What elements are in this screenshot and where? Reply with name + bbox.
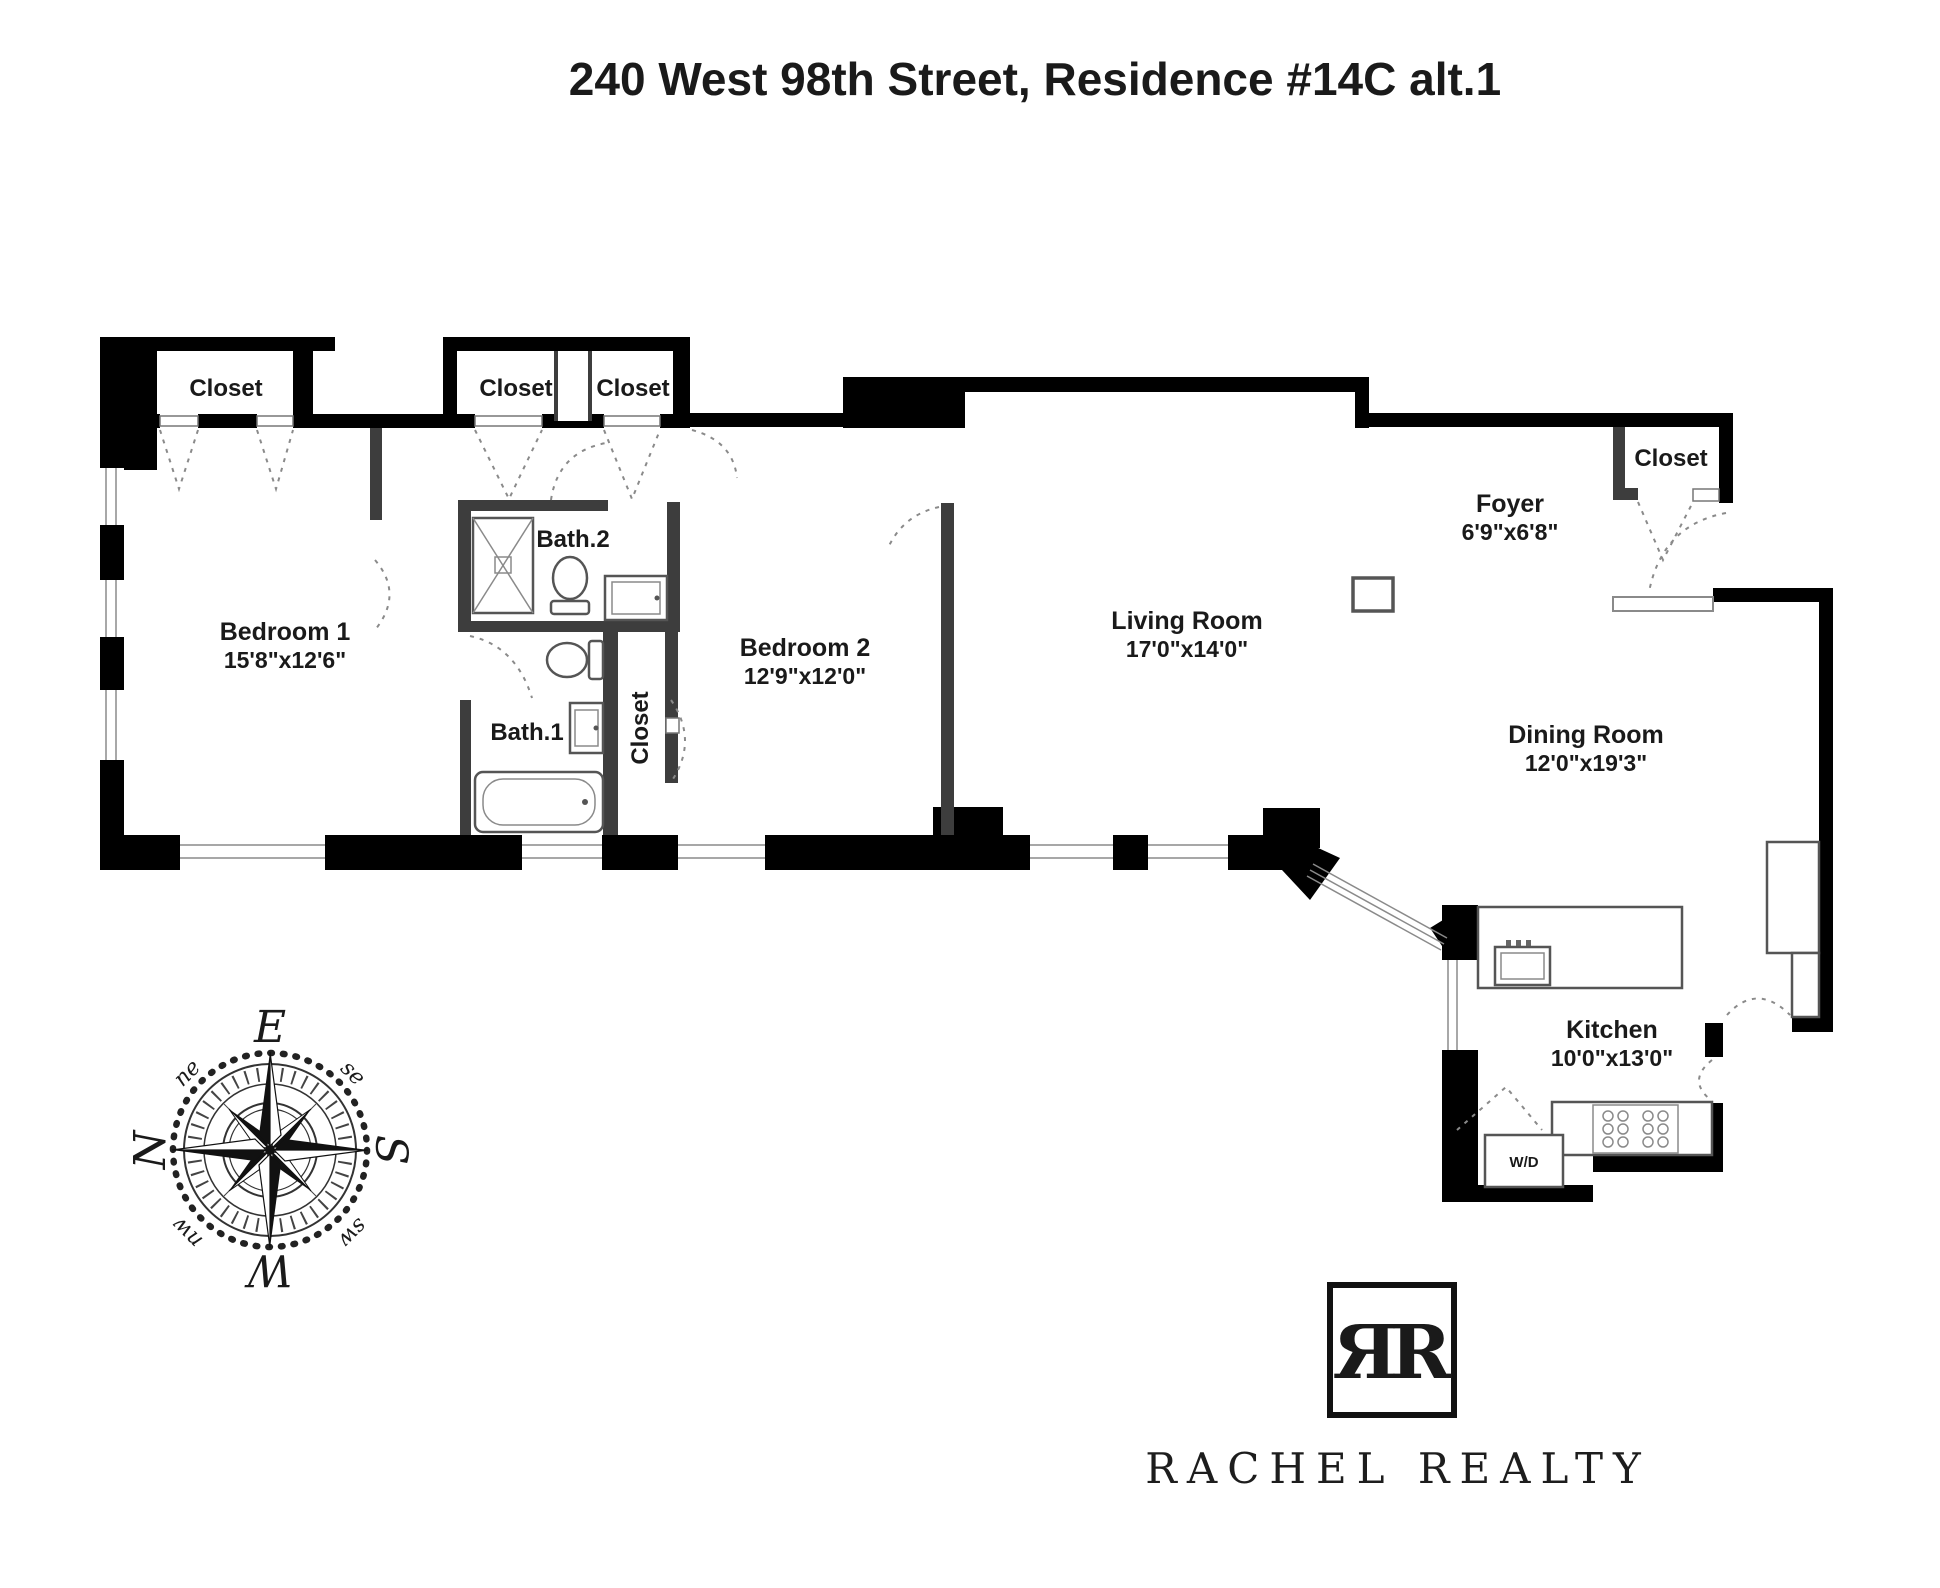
window-diagonal-passage [1307, 864, 1447, 950]
brand-name: RACHEL REALTY [1145, 1444, 1650, 1493]
dims-living-room: 17'0"x14'0" [1126, 636, 1248, 662]
door-swing-bedroom2-living [888, 507, 939, 548]
door-swing-closet2 [475, 430, 542, 499]
label-living-room: Living Room [1111, 607, 1262, 635]
door-swing-bath1 [470, 636, 532, 698]
toilet-bath2 [551, 557, 589, 614]
dims-bedroom2: 12'9"x12'0" [744, 663, 866, 689]
label-closet-hall-right: Closet [596, 375, 669, 402]
compass-east-label: E [253, 1002, 286, 1053]
label-foyer: Foyer [1476, 490, 1544, 518]
compass-south-label: S [365, 1135, 416, 1165]
door-swing-kitchen-side [1699, 1060, 1712, 1101]
label-closet-foyer: Closet [1634, 445, 1707, 472]
door-sills [160, 416, 1719, 733]
label-dining-room: Dining Room [1508, 721, 1664, 749]
compass-rose: E S W N ne se sw nw [125, 1002, 416, 1295]
door-swing-closet1-right [257, 430, 293, 489]
dims-bedroom1: 15'8"x12'6" [224, 647, 346, 673]
window-bottom-5 [1148, 835, 1228, 870]
compass-west-label: W [244, 1244, 293, 1295]
bathtub [475, 772, 603, 832]
dims-foyer: 6'9"x6'8" [1462, 519, 1559, 545]
window-bottom-2 [522, 835, 602, 870]
floor-plan-drawing: 240 West 98th Street, Residence #14C alt… [0, 0, 1940, 1588]
window-bottom-3 [678, 835, 765, 870]
window-bottom-1 [180, 835, 325, 870]
door-swing-kitchen-east [1727, 999, 1790, 1016]
door-swing-entry [1649, 513, 1726, 592]
label-bath1: Bath.1 [490, 719, 563, 746]
brand-block: ЯR RACHEL REALTY [1145, 1285, 1650, 1493]
dims-dining-room: 12'0"x19'3" [1525, 750, 1647, 776]
door-swing-bath2 [551, 443, 606, 500]
page-title: 240 West 98th Street, Residence #14C alt… [569, 53, 1501, 105]
label-closet-hall-left: Closet [479, 375, 552, 402]
dims-kitchen: 10'0"x13'0" [1551, 1045, 1673, 1071]
label-closet-hallway-vertical: Closet [627, 691, 654, 764]
label-bedroom1: Bedroom 1 [220, 618, 351, 646]
door-swing-closet1-left [160, 430, 198, 489]
windows [100, 468, 1464, 1050]
window-kitchen [1442, 960, 1464, 1050]
kitchen-island [1478, 907, 1682, 988]
kitchen-counter-right [1767, 842, 1819, 1017]
compass-north-label: N [125, 1129, 176, 1170]
window-left-2 [100, 580, 124, 637]
window-bottom-4 [1030, 835, 1113, 870]
label-bath2: Bath.2 [536, 526, 609, 553]
toilet-bath1 [547, 641, 603, 679]
shower [473, 518, 533, 613]
label-kitchen: Kitchen [1566, 1016, 1658, 1044]
column [1353, 578, 1393, 611]
window-left-3 [100, 690, 124, 760]
window-left-1 [100, 468, 124, 525]
stove [1552, 1102, 1712, 1155]
foyer-console [1613, 597, 1713, 611]
door-swing-closet3 [604, 430, 660, 499]
washer-dryer: W/D [1485, 1135, 1563, 1187]
label-bedroom2: Bedroom 2 [740, 634, 871, 662]
sink-bath1 [570, 703, 603, 753]
door-swing-bedroom1 [375, 560, 390, 630]
door-swing-bedroom2-hall [692, 430, 737, 478]
compass-northeast-label: ne [169, 1055, 206, 1092]
sink-bath2 [605, 576, 667, 620]
label-closet-bedroom1: Closet [189, 375, 262, 402]
brand-monogram: ЯR [1333, 1310, 1452, 1396]
washer-dryer-label: W/D [1509, 1154, 1538, 1171]
floor-plan-page: 240 West 98th Street, Residence #14C alt… [0, 0, 1940, 1588]
